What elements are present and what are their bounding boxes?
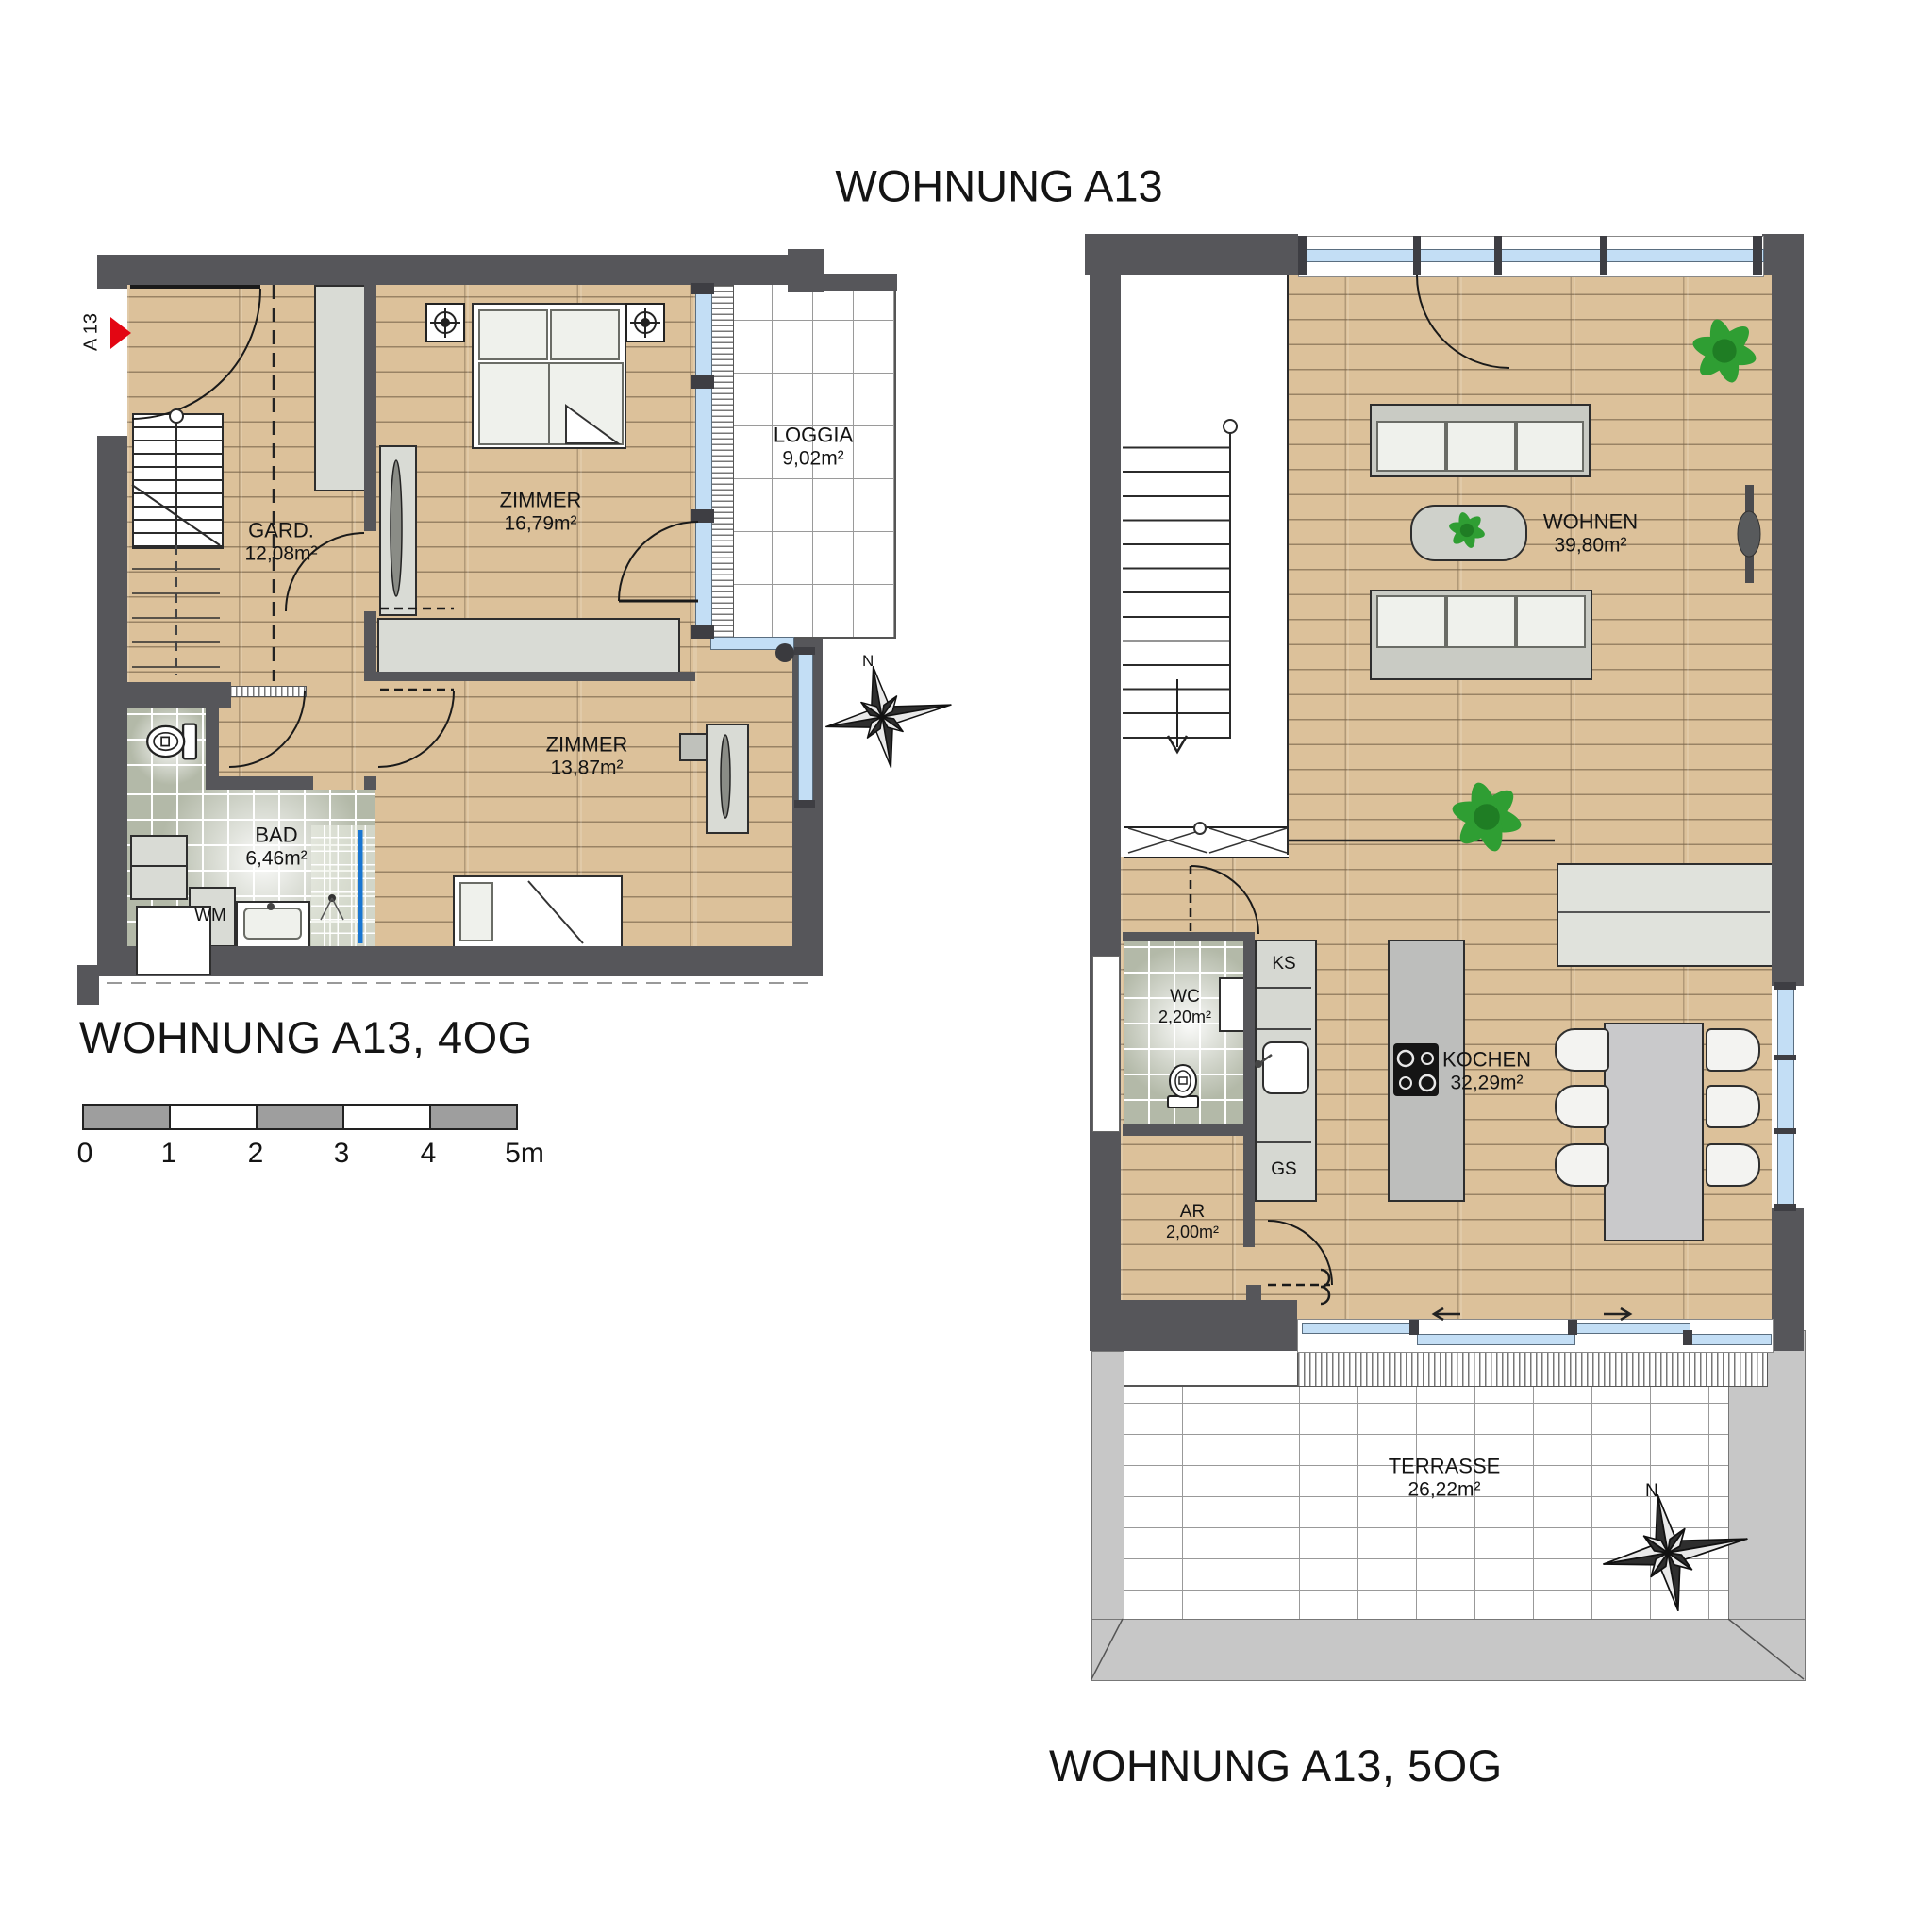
bed-pillow xyxy=(478,309,548,360)
window-left-wall xyxy=(1092,956,1120,1132)
window-loggia xyxy=(695,285,712,639)
wall xyxy=(364,776,376,790)
stairs-under-dashed xyxy=(132,545,220,677)
sofa-cushion xyxy=(1376,595,1446,648)
window-glazing-top xyxy=(1298,249,1764,262)
appliance-label-gs: GS xyxy=(1271,1159,1296,1180)
room-label-terrasse: TERRASSE 26,22m² xyxy=(1389,1455,1501,1503)
room-label-ar: AR 2,00m² xyxy=(1166,1202,1219,1243)
dresser xyxy=(706,724,749,834)
window-mullion xyxy=(1753,236,1762,275)
window-hatch-strip xyxy=(710,285,734,639)
wall xyxy=(97,436,127,976)
sofa-cushion xyxy=(1446,595,1516,648)
window-mullion xyxy=(794,647,815,655)
counter-divider xyxy=(1257,1141,1311,1143)
wall xyxy=(824,274,897,291)
window-right-wall xyxy=(1777,986,1794,1209)
floorplan-page: WOHNUNG A13 xyxy=(0,0,1932,1932)
wall xyxy=(1246,1285,1261,1300)
chair xyxy=(1555,1143,1609,1187)
window-zimmer2 xyxy=(798,653,813,804)
wardrobe-long xyxy=(377,618,680,674)
sofa-cushion xyxy=(1516,421,1584,472)
scale-tick: 5m xyxy=(505,1138,544,1170)
coffee-table xyxy=(1410,505,1527,561)
wall xyxy=(107,255,788,285)
room-label-kochen: KOCHEN 32,29m² xyxy=(1442,1048,1531,1096)
terrace-drain-strip xyxy=(1297,1351,1768,1387)
chair xyxy=(1706,1085,1760,1128)
wall xyxy=(97,255,127,289)
counter-divider xyxy=(1257,1028,1311,1030)
compass-north-label: N xyxy=(862,652,874,670)
window-mullion xyxy=(691,625,714,639)
window-mullion xyxy=(1413,236,1421,275)
chair xyxy=(1706,1143,1760,1187)
scale-tick: 0 xyxy=(77,1138,93,1170)
window-mullion xyxy=(1774,1204,1796,1211)
window-mullion xyxy=(1494,236,1502,275)
page-title-text: WOHNUNG A13 xyxy=(835,160,1162,210)
scale-tick: 3 xyxy=(334,1138,350,1170)
appliance-label-ks: KS xyxy=(1272,954,1295,974)
plan-5og-caption: WOHNUNG A13, 5OG xyxy=(1049,1740,1503,1791)
scale-segment xyxy=(84,1106,169,1128)
scale-bar xyxy=(82,1104,518,1130)
wall xyxy=(364,672,695,681)
wall xyxy=(1123,932,1255,941)
scale-segment xyxy=(169,1106,255,1128)
chair xyxy=(1706,1028,1760,1072)
wall xyxy=(1123,1124,1255,1136)
sliding-window xyxy=(1689,1334,1772,1345)
sideboard-divider xyxy=(1558,911,1770,913)
wall xyxy=(1243,1124,1255,1247)
window-mullion xyxy=(1774,1128,1796,1134)
sofa-cushion xyxy=(1516,595,1586,648)
room-label-gard: GARD. 12,08m² xyxy=(244,519,317,567)
wall xyxy=(77,965,99,1005)
sofa-cushion xyxy=(1446,421,1516,472)
sofa-cushion xyxy=(1376,421,1446,472)
entry-marker-label: A 13 xyxy=(81,313,103,351)
wardrobe-cabinet xyxy=(314,285,370,491)
room-label-zimmer1: ZIMMER 16,79m² xyxy=(500,489,582,537)
sideboard-curved xyxy=(379,445,417,616)
cooktop xyxy=(1393,1043,1439,1096)
wall xyxy=(1091,1300,1297,1351)
bath-vanity xyxy=(130,865,188,900)
scale-tick: 1 xyxy=(161,1138,177,1170)
window-mullion xyxy=(691,283,714,294)
bed-pillow xyxy=(550,309,620,360)
wall xyxy=(206,708,219,790)
window-mullion xyxy=(1409,1320,1419,1335)
kitchen-sink xyxy=(1262,1041,1309,1094)
page-title: WOHNUNG A13 xyxy=(835,159,1162,211)
dining-table xyxy=(1604,1023,1704,1241)
scale-tick: 4 xyxy=(421,1138,437,1170)
chair xyxy=(1555,1028,1609,1072)
terrace-parapet xyxy=(1091,1619,1806,1681)
wall xyxy=(788,249,824,292)
window-mullion xyxy=(1568,1320,1577,1335)
window-mullion xyxy=(1683,1330,1692,1345)
sliding-window xyxy=(1574,1323,1690,1334)
scale-segment xyxy=(256,1106,342,1128)
window-mullion xyxy=(1298,236,1307,275)
wall xyxy=(1772,1207,1804,1351)
stool xyxy=(679,733,708,761)
window-mullion xyxy=(1774,1055,1796,1060)
chair xyxy=(1555,1085,1609,1128)
stairs xyxy=(1123,425,1230,739)
wall xyxy=(219,776,313,790)
bath-vanity xyxy=(130,835,188,867)
wall xyxy=(1090,234,1121,1351)
sideboard xyxy=(1557,863,1775,967)
counter-divider xyxy=(1257,987,1311,989)
terrace-floor xyxy=(1123,1385,1732,1623)
scale-segment xyxy=(429,1106,516,1128)
room-label-wc: WC 2,20m² xyxy=(1158,987,1211,1028)
shower-tiles xyxy=(311,825,375,946)
plan-4og-caption: WOHNUNG A13, 4OG xyxy=(79,1011,533,1063)
window-mullion xyxy=(794,800,815,808)
window-mullion xyxy=(691,509,714,523)
window-mullion xyxy=(1600,236,1607,275)
bed-pillow xyxy=(459,882,493,941)
wall xyxy=(364,283,376,531)
room-label-wohnen: WOHNEN 39,80m² xyxy=(1543,510,1638,558)
sliding-window xyxy=(1417,1334,1575,1345)
window-mullion xyxy=(691,375,714,389)
scale-tick: 2 xyxy=(248,1138,264,1170)
appliance-label-wm: WM xyxy=(194,906,226,926)
stairs xyxy=(132,413,224,549)
bed-mattress xyxy=(478,362,550,445)
room-label-zimmer2: ZIMMER 13,87m² xyxy=(546,733,628,781)
door-sill-hatch xyxy=(229,686,307,697)
bed-mattress xyxy=(548,362,624,445)
room-label-bad: BAD 6,46m² xyxy=(245,824,307,872)
stair-balustrade xyxy=(1124,826,1289,858)
wc-tiles xyxy=(1124,941,1243,1124)
terrace-parapet xyxy=(1091,1351,1124,1621)
bath-tiles-nook xyxy=(127,708,206,790)
bath-sink-basin xyxy=(243,908,302,940)
compass-rose-icon xyxy=(818,655,960,777)
window-mullion xyxy=(1774,982,1796,990)
wall xyxy=(127,682,231,708)
scale-segment xyxy=(342,1106,428,1128)
sliding-window xyxy=(1302,1323,1419,1334)
room-label-loggia: LOGGIA 9,02m² xyxy=(774,424,853,472)
wall xyxy=(1243,932,1255,1136)
wall xyxy=(1772,234,1804,986)
wall xyxy=(364,611,376,681)
window-under-loggia xyxy=(710,637,794,650)
